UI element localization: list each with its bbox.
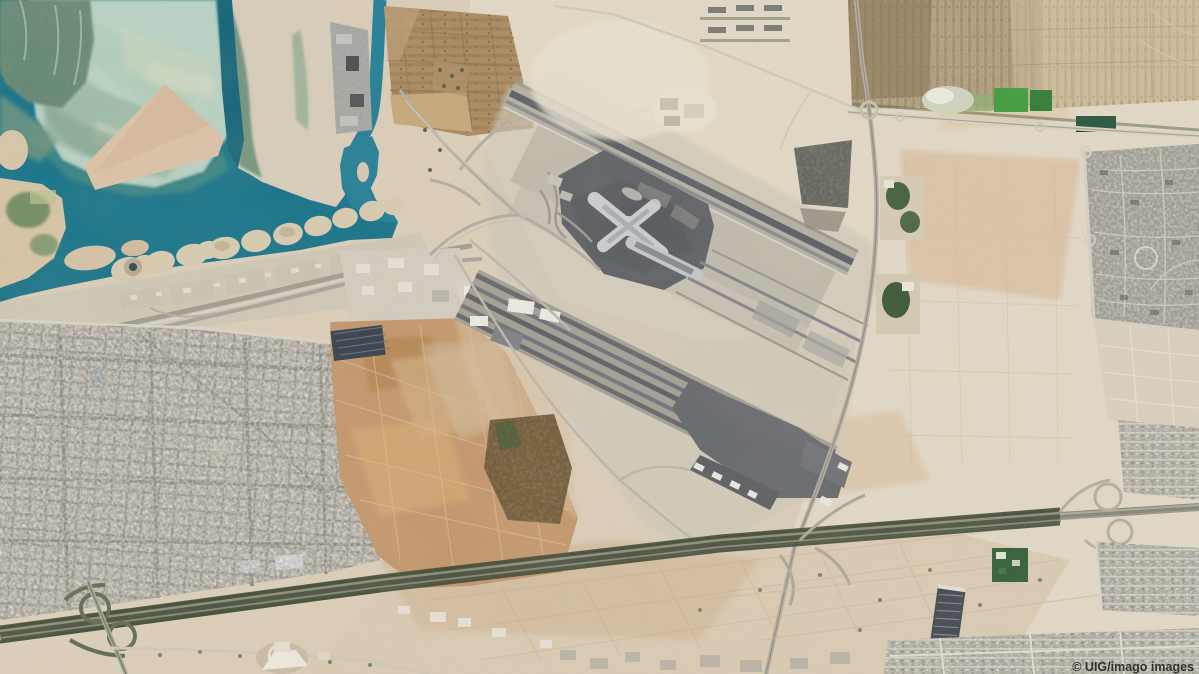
svg-text:© UIG/imago images: © UIG/imago images: [1072, 660, 1194, 674]
